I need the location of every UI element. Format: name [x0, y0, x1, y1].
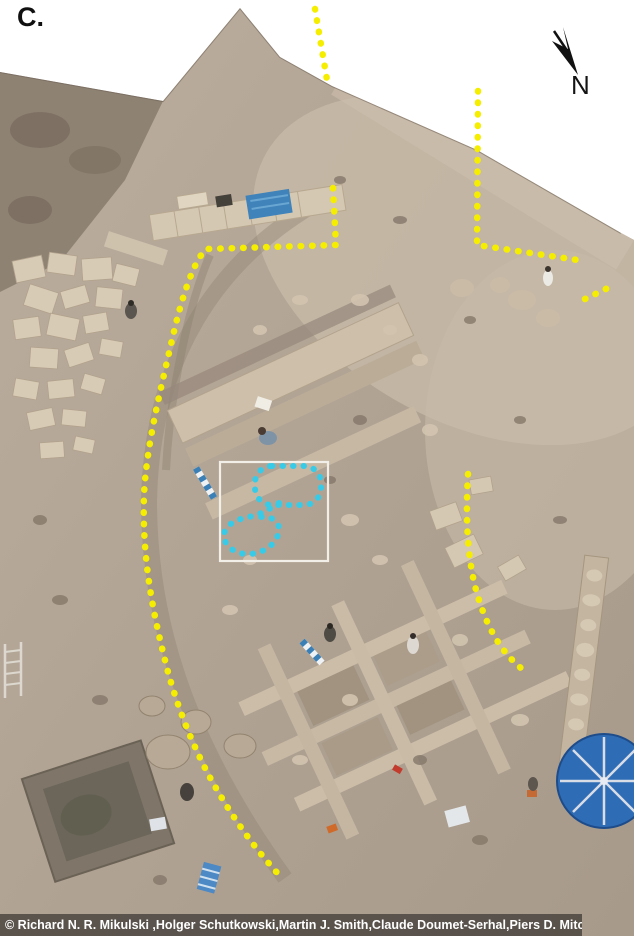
- aerial-photo: [0, 0, 634, 936]
- figure-panel: C. N © Richard N. R. Mikulski ,Holger Sc…: [0, 0, 634, 936]
- yellow-dotted-line-north: [315, 9, 327, 80]
- credit-text: © Richard N. R. Mikulski ,Holger Schutko…: [5, 918, 582, 932]
- panel-label: C.: [17, 2, 44, 33]
- north-label: N: [571, 70, 590, 101]
- aerial-photo-figure: [0, 0, 634, 936]
- north-arrow-icon: [552, 27, 578, 75]
- credit-bar: © Richard N. R. Mikulski ,Holger Schutko…: [0, 914, 582, 936]
